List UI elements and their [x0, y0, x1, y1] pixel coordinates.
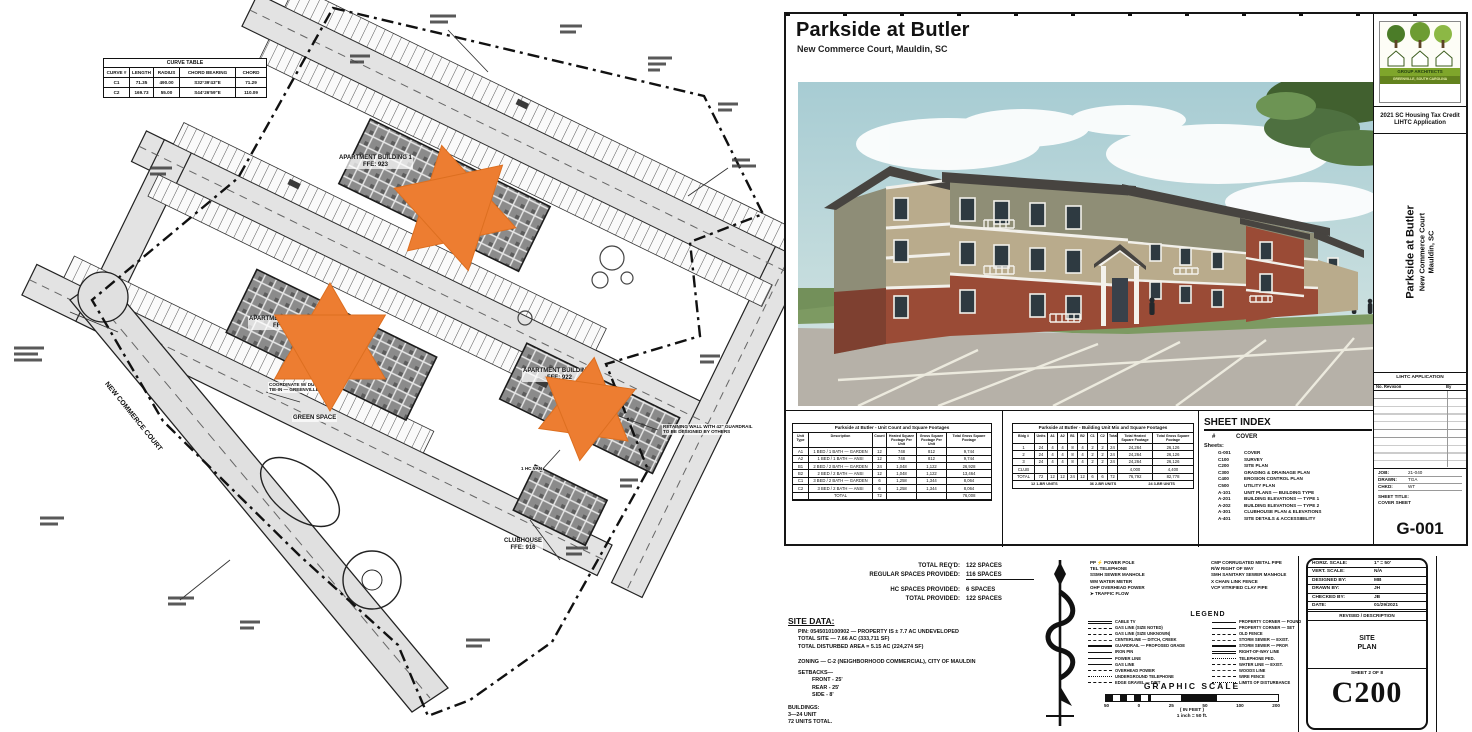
titleblock-field-row: JOB:21-040 [1378, 470, 1462, 477]
sheet-index-row: C400 EROSION CONTROL PLAN [1218, 476, 1372, 483]
abbreviations-left: PP ⚡ POWER POLETEL TELEPHONESSMH SEWER M… [1090, 560, 1205, 597]
sheet-index-row: C500 UTILITY PLAN [1218, 483, 1372, 490]
table-row: TOTAL 72 76,008 [793, 493, 991, 500]
curve-table-row: C171.35 490.00S32°39'43"E 71.29 [104, 78, 266, 88]
sheet-index-row: A-202 BUILDING ELEVATIONS — TYPE 2 [1218, 503, 1372, 510]
site-data-lines: PIN: 0545010100902 — PROPERTY IS ± 7.7 A… [788, 629, 1056, 666]
legend-linetype-icon [1212, 651, 1236, 654]
c200-titleblock: HORIZ. SCALE: 1" = 50' VERT. SCALE: N/A … [1306, 558, 1428, 730]
sheet-index-row: G-001 COVER [1218, 450, 1372, 457]
curve-table-header-cell: CHORD BEARING [180, 68, 236, 78]
screenshot-root: CURVE TABLE CURVE #LENGTHRADIUSCHORD BEA… [0, 0, 1472, 732]
project-name-vertical: Parkside at Butler [1405, 137, 1418, 367]
legend-linetype-icon [1088, 664, 1112, 665]
legend-linetype-icon [1088, 670, 1112, 671]
titleblock-field-row: DRAWN:TGA [1378, 477, 1462, 484]
legend-linetype-icon [1212, 622, 1236, 623]
titleblock-column: GROUP ARCHITECTS GREENVILLE, SOUTH CAROL… [1373, 14, 1466, 544]
parking-summary-row: HC SPACES PROVIDED: 6 SPACES [842, 586, 1034, 594]
scale-inch-note: 1 inch = 50 ft. [1103, 714, 1281, 720]
sheet-index-row: A-101 UNIT PLANS — BUILDING TYPE [1218, 490, 1372, 497]
sheet-number-c200: C200 [1308, 677, 1426, 709]
legend-linetype-icon [1212, 634, 1236, 635]
project-title: Parkside at Butler [796, 19, 970, 41]
hc-van-label: 1 HC VAN [520, 466, 543, 471]
legend-linetype-icon [1088, 676, 1112, 677]
curve-table-header-cell: CHORD [236, 68, 266, 78]
titleblock-field-row: CHKD:WT [1378, 484, 1462, 491]
legend-linetype-icon [1088, 634, 1112, 635]
table-row: A11 BED / 1 BATH — GARDEN 12748 8129,744 [793, 448, 991, 455]
revision-table: No. Revision By [1374, 384, 1466, 469]
cover-lower-band: Parkside at Butler - Unit Count and Squa… [786, 410, 1378, 547]
parking-summary: TOTAL REQ'D: 122 SPACES REGULAR SPACES P… [842, 562, 1034, 604]
sheet-index-list: G-001 COVER C100 SURVEY C200 SITE PLAN [1204, 450, 1372, 523]
table-row: A21 BED / 1 BATH — ANSI 12748 8129,744 [793, 456, 991, 463]
curve-table-header-cell: RADIUS [154, 68, 180, 78]
curve-table-header-cell: LENGTH [130, 68, 154, 78]
graphic-scale-title: GRAPHIC SCALE [1103, 681, 1281, 691]
legend-linetype-icon [1088, 640, 1112, 641]
c200-sheet-title: SITE PLAN [1308, 635, 1426, 652]
project-subtitle: New Commerce Court, Mauldin, SC [797, 44, 948, 54]
legend-linetype-icon [1088, 628, 1112, 629]
unit-count-table: Parkside at Butler - Unit Count and Squa… [792, 423, 992, 501]
tie-in-note: COORDINATE W/ DUKE ENERGYTIE-IN — GREENV… [268, 382, 342, 393]
titleblock-row: DESIGNED BY: MB [1308, 577, 1426, 585]
table-row: 324 44 84 22 2424,264 26,126 [1013, 459, 1193, 466]
north-arrow-icon [1032, 558, 1088, 730]
building-2-label: APARTMENT BUILDING 2FFE: 922 [522, 368, 597, 382]
table-row: CLUB 4,000 4,400 [1013, 466, 1193, 473]
architect-logo-trees-icon [1380, 22, 1460, 68]
titleblock-row: DRAWN BY: JH [1308, 585, 1426, 593]
sheet-index-group: Sheets: [1204, 443, 1372, 450]
sheet-index-row: A-401 SITE DETAILS & ACCESSIBILITY [1218, 516, 1372, 523]
parking-summary-row: REGULAR SPACES PROVIDED: 116 SPACES [842, 571, 1034, 580]
cover-sheet: Parkside at Butler New Commerce Court, M… [784, 12, 1468, 546]
legend-linetype-icon [1212, 664, 1236, 665]
setbacks-list: SETBACKS—FRONT - 25'REAR - 25'SIDE - 8' [788, 670, 1056, 700]
sheet-index-row: A-301 CLUBHOUSE PLAN & ELEVATIONS [1218, 509, 1372, 516]
retaining-wall-note: RETAINING WALL WITH 42" GUARDRAILTO BE D… [662, 424, 754, 435]
legend-block: LEGEND CABLE TV GAS LINE (SIZE NOTED) [1088, 610, 1328, 686]
project-name-box: Parkside at Butler New Commerce Court Ma… [1374, 132, 1466, 373]
legend-linetype-icon [1088, 621, 1112, 624]
building-1-label: APARTMENT BUILDING 1FFE: 923 [338, 155, 413, 169]
table-row: C13 BED / 2 BATH — GARDEN 61,258 1,3448,… [793, 478, 991, 485]
buildings-note: BUILDINGS:3—24 UNIT72 UNITS TOTAL. [788, 705, 1056, 727]
legend-linetype-icon [1212, 658, 1236, 659]
legend-linetype-icon [1088, 658, 1112, 659]
unit-mix-table-notes: 12 1-BR UNITS36 2-BR UNITS24 3-BR UNITS [1013, 481, 1193, 488]
unit-mix-table-body: 124 44 84 22 2424,264 26,126 224 44 84 [1013, 444, 1193, 481]
parking-summary-row: TOTAL PROVIDED: 122 SPACES [842, 595, 1034, 603]
sheet-index-row: C300 GRADING & DRAINAGE PLAN [1218, 470, 1372, 477]
graphic-scale-bar [1105, 694, 1279, 702]
unit-count-table-headers: Unit TypeDescriptionCountHeated Square F… [793, 433, 991, 449]
sheet-title: COVER SHEET [1378, 500, 1462, 506]
tax-credit-box: 2021 SC Housing Tax Credit LIHTC Applica… [1374, 106, 1466, 134]
abbreviations-block: PP ⚡ POWER POLETEL TELEPHONESSMH SEWER M… [1090, 560, 1326, 597]
table-row: C23 BED / 2 BATH — ANSI 61,258 1,3448,06… [793, 485, 991, 492]
curve-table-row: C2169.73 55.00S44°26'59"E 110.09 [104, 88, 266, 97]
site-data-title: SITE DATA: [788, 616, 1056, 626]
sheet-index: SHEET INDEX # COVER Sheets: G-001 COVER [1204, 417, 1372, 523]
curve-table-header: CURVE #LENGTHRADIUSCHORD BEARINGCHORD [104, 68, 266, 78]
parking-summary-row: TOTAL REQ'D: 122 SPACES [842, 562, 1034, 570]
unit-count-table-title: Parkside at Butler - Unit Count and Squa… [793, 424, 991, 433]
titleblock-fields: JOB:21-040 DRAWN:TGA CHKD:WT SHEET TITLE… [1374, 468, 1466, 508]
sheet-index-row: C100 SURVEY [1218, 457, 1372, 464]
unit-count-table-body: A11 BED / 1 BATH — GARDEN 12748 8129,744… [793, 448, 991, 500]
titleblock-row: HORIZ. SCALE: 1" = 50' [1308, 560, 1426, 568]
legend-linetype-icon [1212, 628, 1236, 629]
building-3-label: APARTMENT BUILDING 3FFE: 921 [248, 316, 323, 330]
sheet-index-title: SHEET INDEX [1204, 417, 1372, 431]
table-row: 124 44 84 22 2424,264 26,126 [1013, 444, 1193, 451]
site-plan-drawing [0, 0, 788, 732]
unit-mix-table-headers: Bldg #UnitsA1A2B1B2C1C2TotalTotal Heated… [1013, 433, 1193, 444]
legend-linetype-icon [1088, 645, 1112, 647]
table-row: TOTAL72 1212 2412 66 7276,792 82,778 [1013, 474, 1193, 481]
titleblock-row: VERT. SCALE: N/A [1308, 568, 1426, 576]
revision-band: REVISED / DESCRIPTION [1308, 611, 1426, 621]
table-row: B12 BED / 2 BATH — GARDEN 241,048 1,1222… [793, 463, 991, 470]
unit-mix-table-title: Parkside at Butler - Building Unit Mix a… [1013, 424, 1193, 433]
architect-firm-address: GREENVILLE, SOUTH CAROLINA [1380, 76, 1460, 84]
table-row: B22 BED / 2 BATH — ANSI 121,048 1,12213,… [793, 470, 991, 477]
building-rendering [798, 82, 1376, 406]
sheet-number-g001: G-001 [1374, 520, 1466, 538]
table-row: 224 44 84 22 2424,264 26,126 [1013, 451, 1193, 458]
legend-linetype-icon [1212, 670, 1236, 671]
green-space-label: GREEN SPACE [292, 415, 337, 422]
sheet-index-row: C200 SITE PLAN [1218, 463, 1372, 470]
sheet-index-intro: # COVER [1212, 433, 1372, 442]
legend-linetype-icon [1088, 652, 1112, 653]
curve-table-body: C171.35 490.00S32°39'43"E 71.29 C2169.73… [104, 78, 266, 97]
sheet-index-row: A-201 BUILDING ELEVATIONS — TYPE 1 [1218, 496, 1372, 503]
unit-mix-table: Parkside at Butler - Building Unit Mix a… [1012, 423, 1194, 489]
legend-linetype-icon [1212, 645, 1236, 647]
architect-logo: GROUP ARCHITECTS GREENVILLE, SOUTH CAROL… [1379, 21, 1461, 103]
sheet-title-label: SHEET TITLE: [1378, 494, 1409, 499]
legend-title: LEGEND [1088, 610, 1328, 619]
curve-table-header-cell: CURVE # [104, 68, 130, 78]
curve-table-title: CURVE TABLE [104, 59, 266, 68]
clubhouse-label: CLUBHOUSEFFE: 916 [503, 538, 543, 552]
legend-left-column: CABLE TV GAS LINE (SIZE NOTED) GAS LINE … [1088, 619, 1204, 686]
graphic-scale: GRAPHIC SCALE 5002550100200 ( IN FEET ) … [1103, 681, 1281, 720]
legend-linetype-icon [1212, 640, 1236, 641]
titleblock-row: CHECKED BY: JB [1308, 594, 1426, 602]
legend-linetype-icon [1212, 676, 1236, 677]
titleblock-row: DATE: 01/29/2021 [1308, 602, 1426, 610]
curve-table: CURVE TABLE CURVE #LENGTHRADIUSCHORD BEA… [103, 58, 267, 98]
site-data-block: SITE DATA: PIN: 0545010100902 — PROPERTY… [788, 616, 1056, 727]
architect-firm-name: GROUP ARCHITECTS [1380, 68, 1460, 76]
